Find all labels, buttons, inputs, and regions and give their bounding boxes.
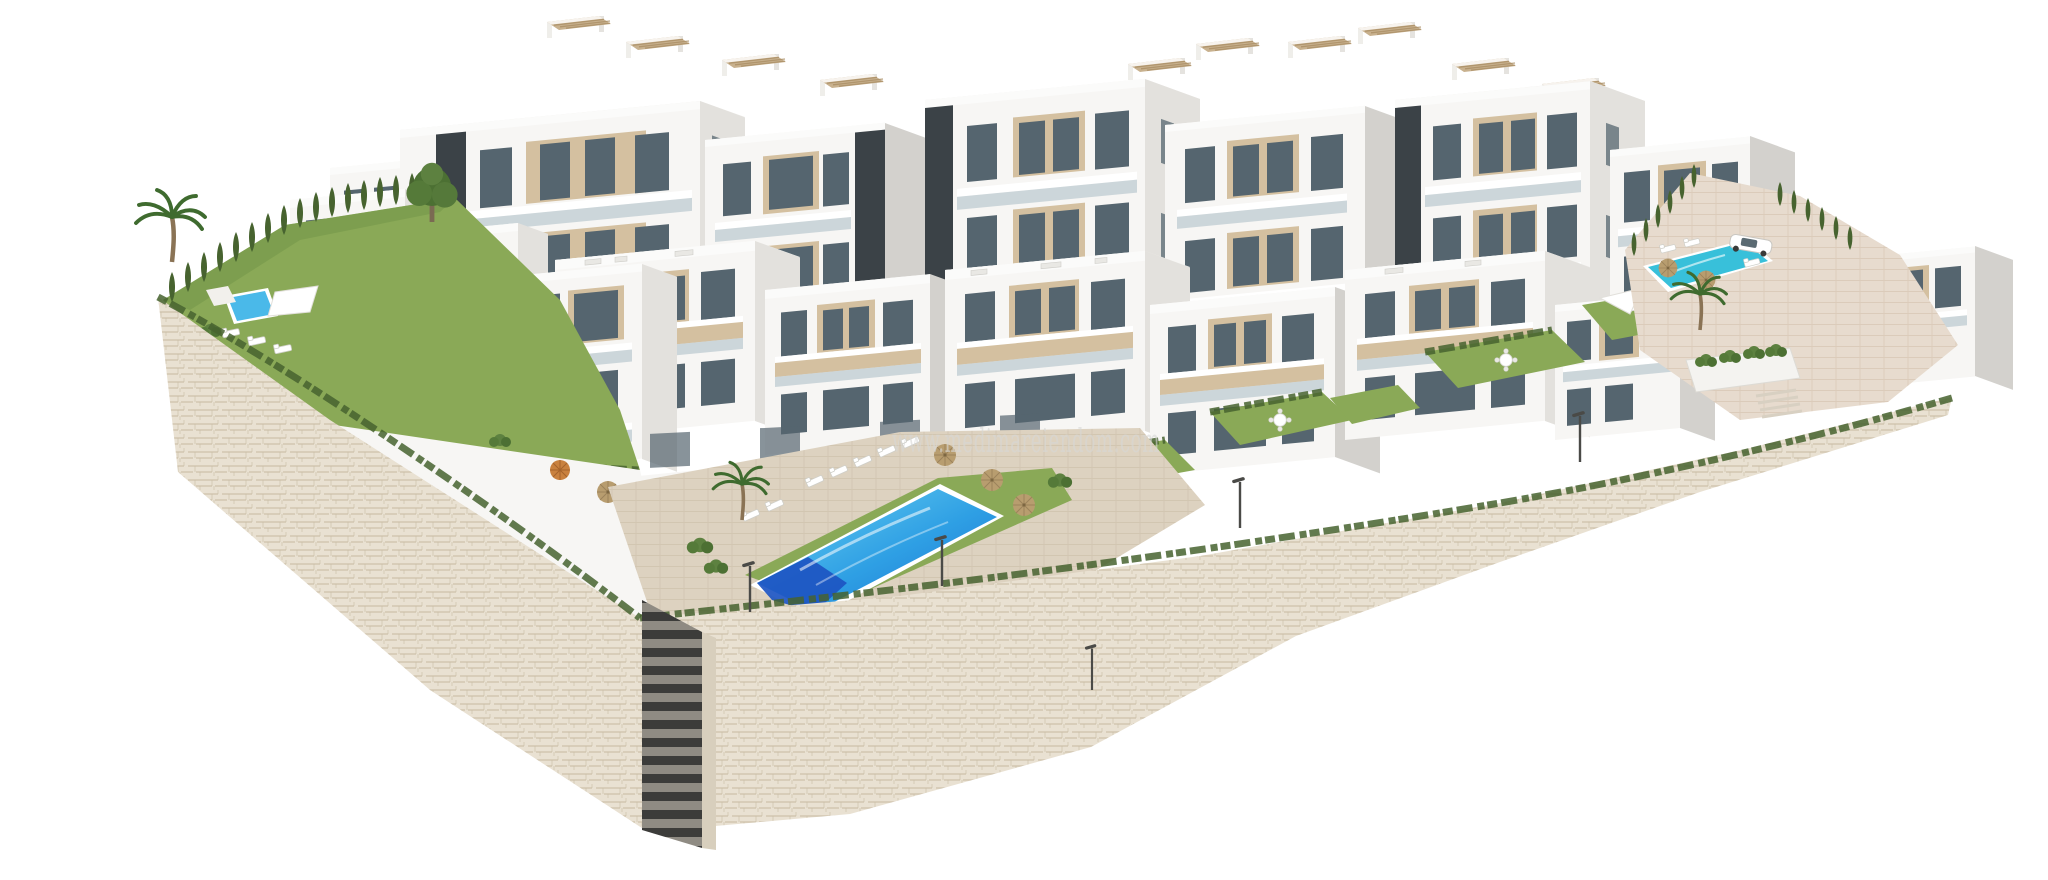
architectural-render: www.medimareiendom.com bbox=[0, 0, 2048, 880]
window-grid bbox=[957, 274, 1133, 429]
window-grid bbox=[775, 295, 921, 435]
outdoor-staircase-shaft bbox=[642, 600, 716, 850]
render-canvas: www.medimareiendom.com bbox=[0, 0, 2048, 880]
watermark-text: www.medimareiendom.com bbox=[892, 421, 1160, 460]
palm-tree bbox=[136, 190, 205, 262]
